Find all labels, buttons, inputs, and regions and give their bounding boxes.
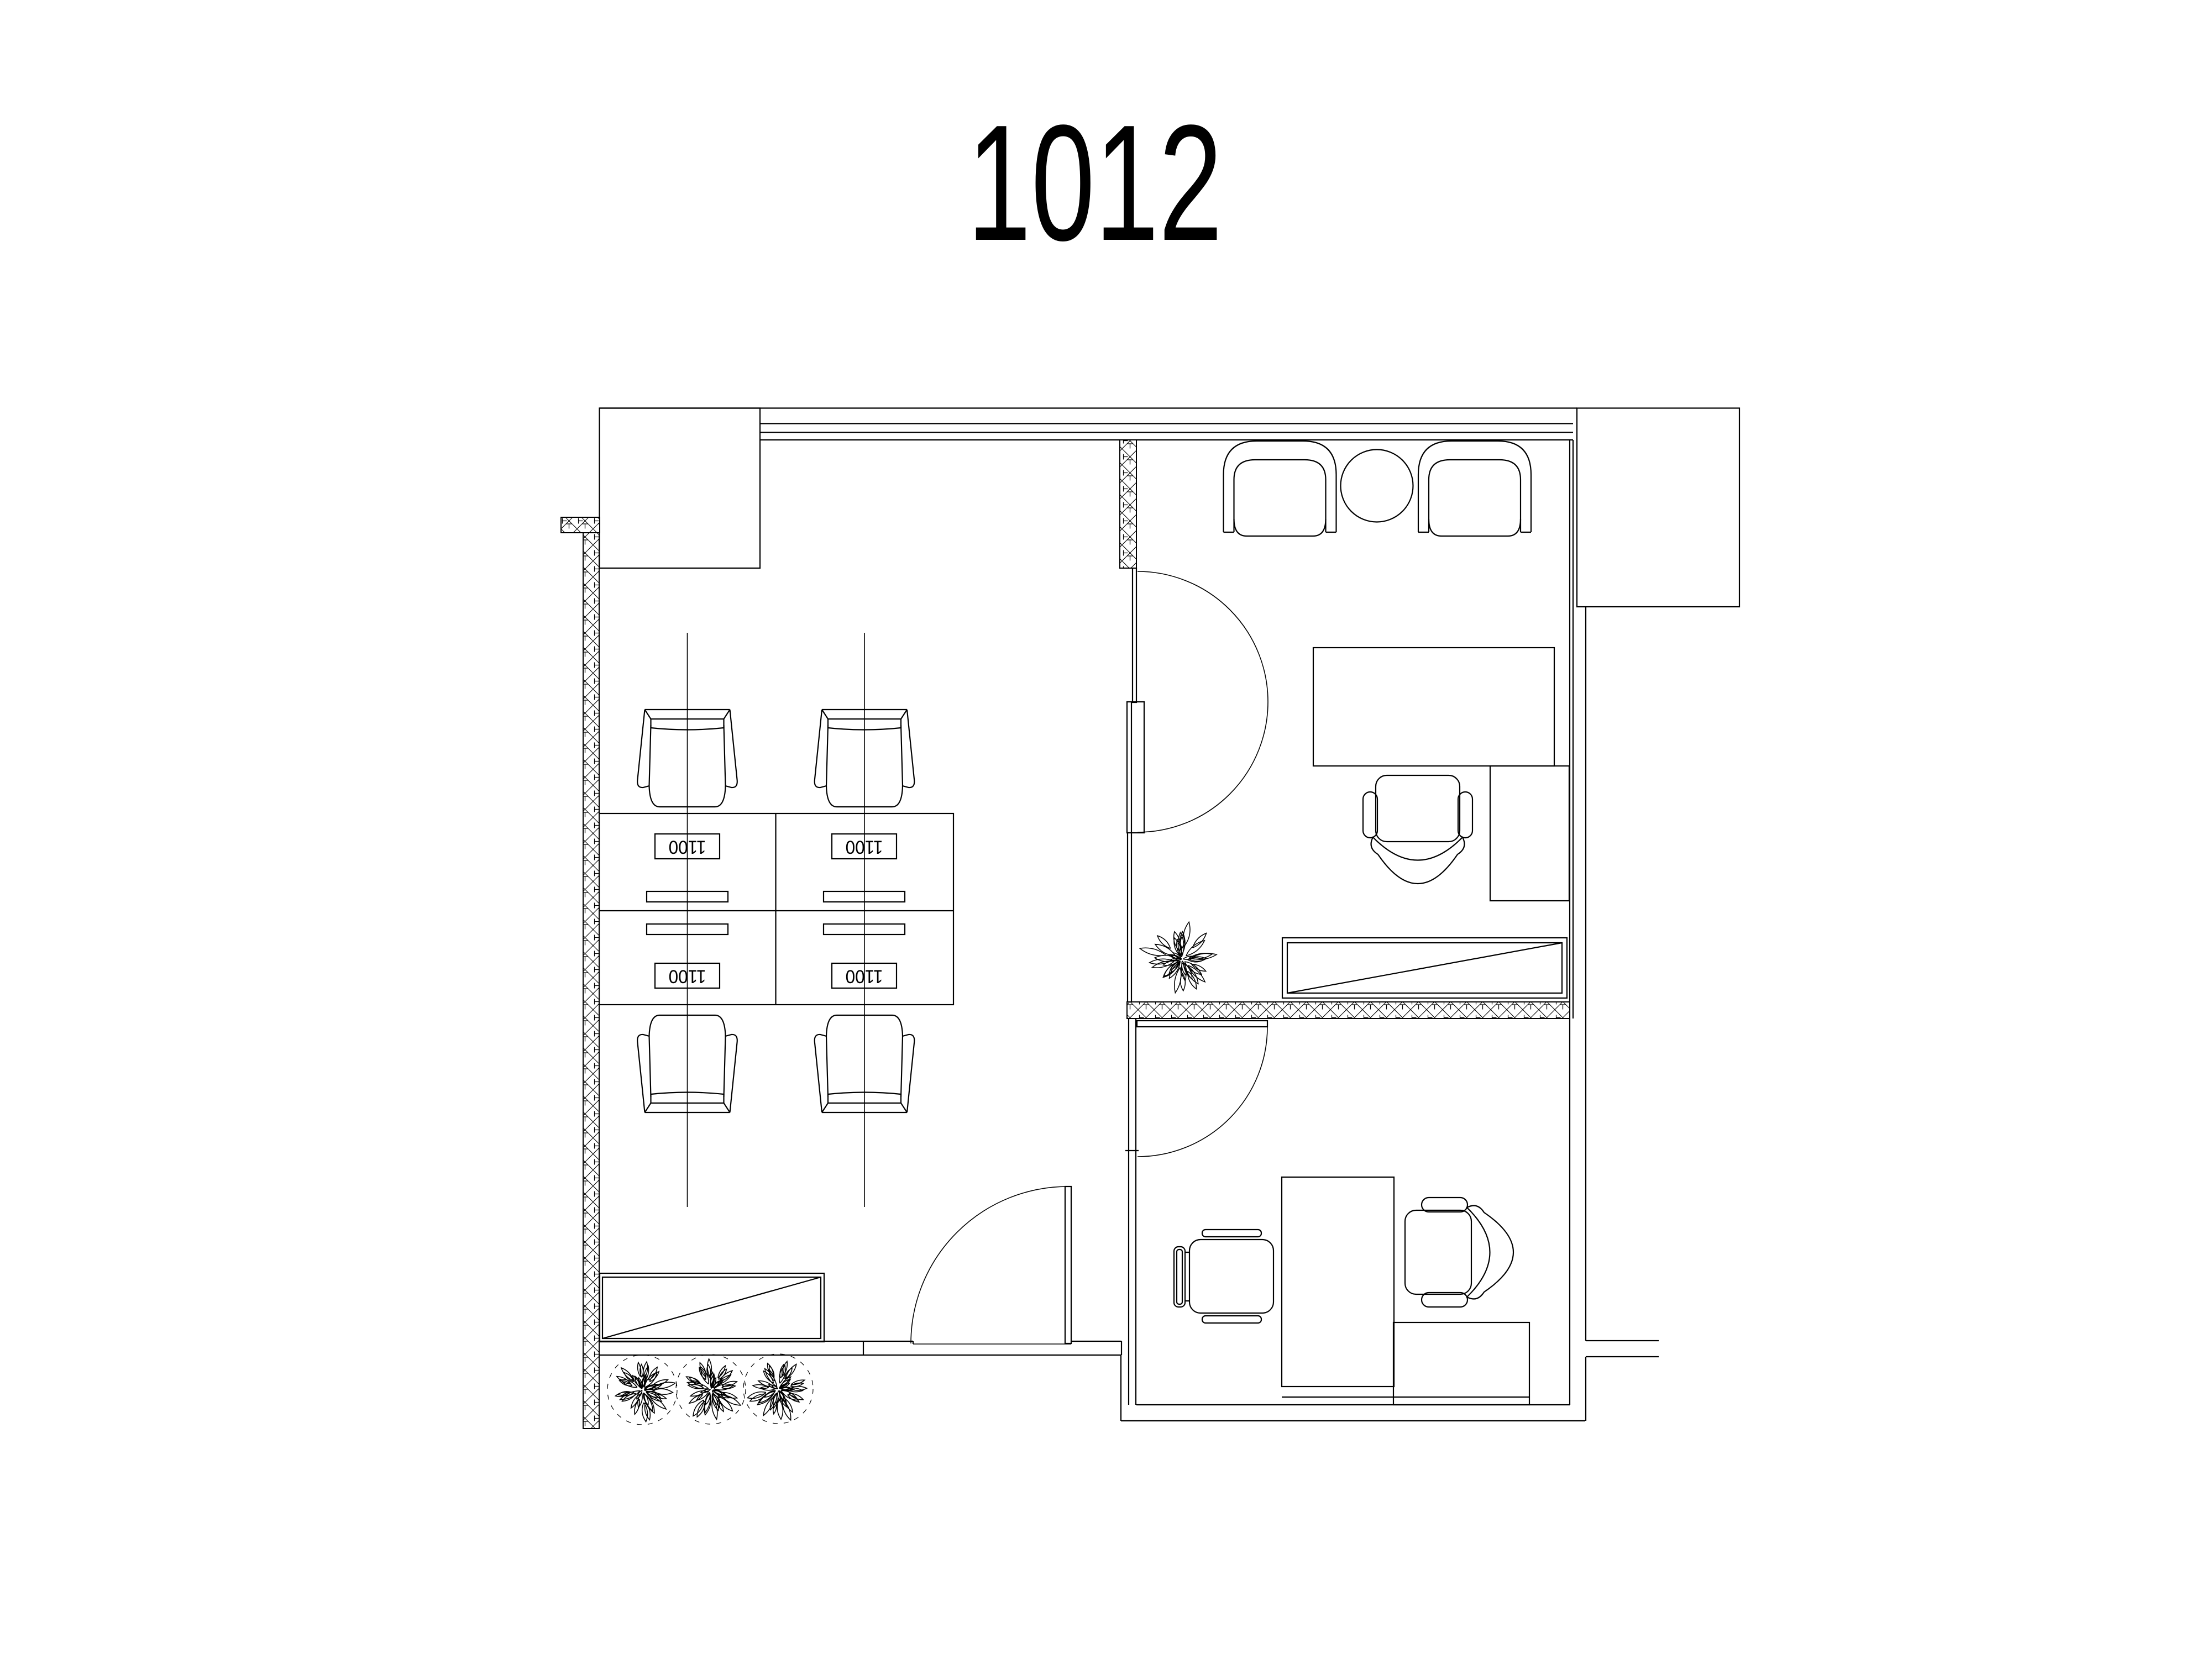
svg-text:1100: 1100	[846, 966, 883, 988]
svg-text:1100: 1100	[846, 837, 883, 858]
svg-text:1100: 1100	[669, 837, 706, 858]
svg-text:1100: 1100	[669, 966, 706, 988]
svg-text:1012: 1012	[967, 90, 1223, 275]
